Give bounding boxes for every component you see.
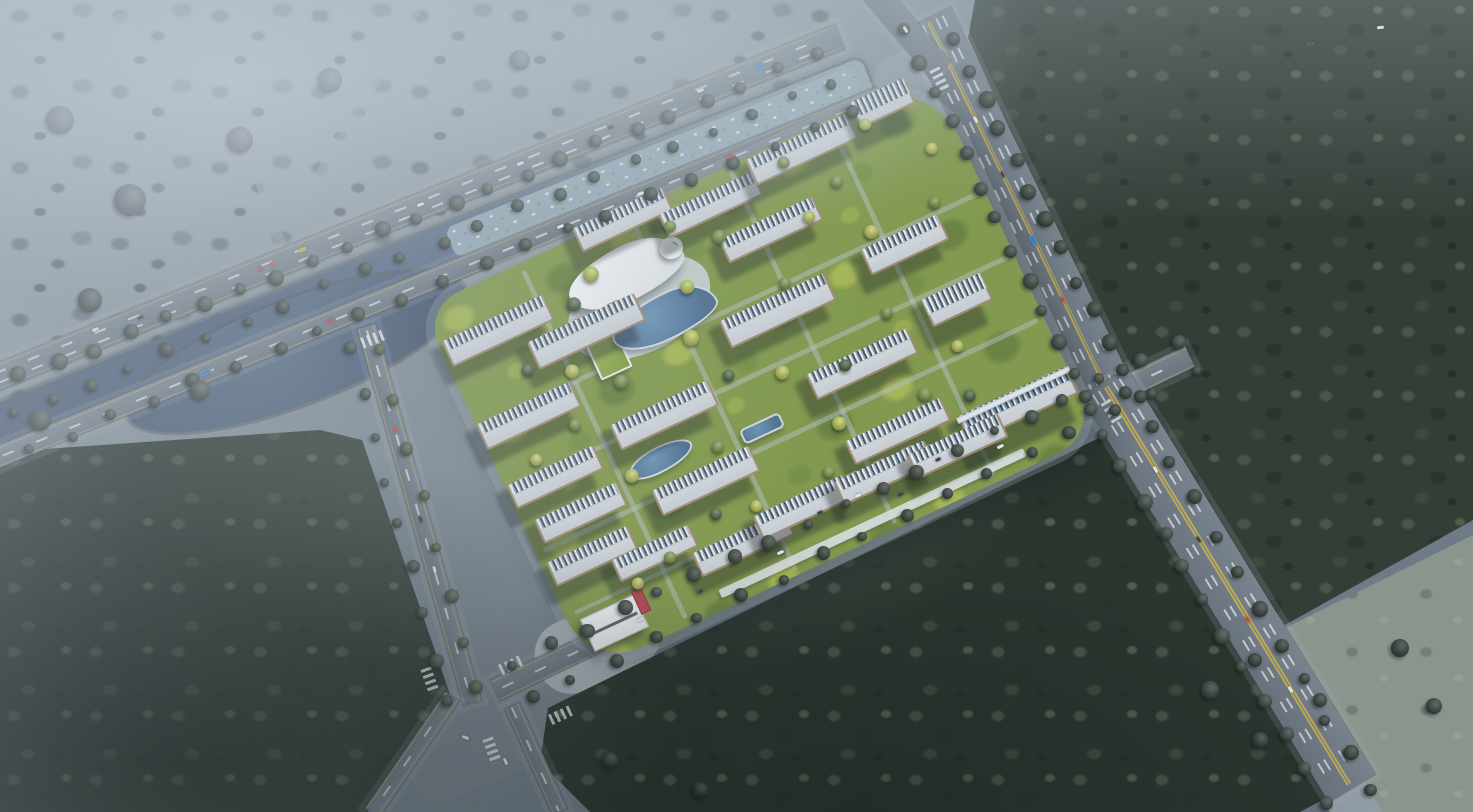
street-tree: [909, 465, 924, 480]
street-tree: [565, 675, 575, 685]
street-tree: [545, 636, 558, 649]
street-tree: [846, 105, 859, 118]
street-tree: [230, 361, 242, 373]
landscape-tree: [710, 439, 726, 455]
street-tree: [691, 613, 701, 623]
street-tree: [1248, 653, 1262, 667]
street-tree: [1116, 364, 1129, 377]
street-tree: [202, 333, 211, 342]
street-tree: [268, 270, 284, 286]
street-tree: [374, 344, 385, 355]
street-tree: [86, 344, 101, 359]
street-tree: [1320, 796, 1333, 809]
street-tree: [9, 408, 18, 417]
street-tree: [351, 307, 365, 321]
street-tree: [1298, 762, 1311, 775]
street-tree: [1252, 732, 1268, 748]
street-tree: [811, 47, 824, 60]
street-tree: [692, 782, 708, 798]
street-tree: [857, 532, 867, 542]
street-tree: [1054, 240, 1068, 254]
street-tree: [392, 518, 402, 528]
street-tree: [1134, 353, 1148, 367]
street-tree: [319, 279, 329, 289]
landscape-tree: [528, 452, 544, 468]
street-tree: [1011, 153, 1025, 167]
street-tree: [276, 300, 290, 314]
aerial-masterplan-rendering: [0, 0, 1473, 812]
street-tree: [123, 365, 132, 374]
street-tree: [1163, 456, 1174, 467]
street-tree: [929, 87, 941, 99]
street-tree: [1097, 429, 1108, 440]
street-tree: [1201, 681, 1219, 699]
street-tree: [817, 546, 830, 559]
street-tree: [307, 255, 319, 267]
street-tree: [344, 341, 357, 354]
street-tree: [29, 409, 51, 431]
street-tree: [159, 342, 174, 357]
street-tree: [114, 184, 146, 216]
street-tree: [1280, 727, 1294, 741]
street-tree: [728, 549, 742, 563]
landscape-tree: [962, 388, 978, 404]
street-tree: [602, 752, 618, 768]
street-tree: [618, 600, 632, 614]
street-tree: [1134, 390, 1147, 403]
street-tree: [1391, 639, 1409, 657]
street-tree: [901, 509, 914, 522]
street-tree: [1023, 273, 1039, 289]
street-tree: [1197, 593, 1209, 605]
street-tree: [1146, 388, 1157, 399]
street-tree: [1364, 784, 1376, 796]
street-tree: [78, 288, 102, 312]
street-tree: [51, 353, 68, 370]
street-tree: [471, 220, 483, 232]
street-tree: [510, 50, 530, 70]
street-tree: [687, 567, 702, 582]
street-tree: [527, 690, 540, 703]
street-tree: [46, 106, 74, 134]
street-tree: [1020, 184, 1036, 200]
street-tree: [947, 32, 960, 45]
street-tree: [227, 127, 253, 153]
street-tree: [1343, 745, 1358, 760]
street-tree: [650, 631, 662, 643]
street-tree: [190, 380, 210, 400]
street-tree: [580, 624, 594, 638]
street-tree: [482, 183, 494, 195]
street-tree: [826, 79, 837, 90]
street-tree: [430, 654, 443, 667]
street-tree: [1426, 698, 1442, 714]
street-tree: [1137, 494, 1153, 510]
street-tree: [417, 607, 428, 618]
street-tree: [318, 68, 342, 92]
street-tree: [772, 62, 783, 73]
street-tree: [974, 182, 988, 196]
landscape-tree: [924, 141, 940, 157]
street-tree: [1094, 373, 1105, 384]
street-tree: [804, 519, 813, 528]
street-tree: [734, 82, 745, 93]
street-tree: [1113, 458, 1127, 472]
street-tree: [771, 142, 780, 151]
street-tree: [1084, 403, 1097, 416]
street-tree: [599, 210, 611, 222]
street-tree: [554, 188, 567, 201]
street-tree: [360, 388, 371, 399]
street-tree: [631, 122, 645, 136]
street-tree: [410, 213, 422, 225]
residential-tower: [921, 272, 1001, 342]
street-tree: [610, 654, 624, 668]
street-tree: [1252, 601, 1267, 616]
street-tree: [981, 468, 992, 479]
street-tree: [563, 223, 573, 233]
street-tree: [419, 490, 430, 501]
street-tree: [942, 488, 953, 499]
street-tree: [1025, 410, 1039, 424]
street-tree: [1313, 693, 1327, 707]
street-tree: [1160, 527, 1173, 540]
street-tree: [661, 110, 676, 125]
street-tree: [449, 195, 464, 210]
landscape-tree: [829, 174, 845, 190]
street-tree: [1062, 426, 1076, 440]
street-tree: [588, 171, 600, 183]
street-tree: [589, 135, 601, 147]
street-tree: [631, 154, 641, 164]
street-tree: [68, 432, 77, 441]
street-tree: [1109, 404, 1121, 416]
street-tree: [651, 587, 662, 598]
street-tree: [979, 91, 995, 107]
street-tree: [48, 394, 59, 405]
street-tree: [149, 396, 161, 408]
street-tree: [395, 294, 408, 307]
street-tree: [441, 695, 453, 707]
street-tree: [400, 442, 413, 455]
street-tree: [124, 324, 139, 339]
street-tree: [359, 262, 371, 274]
street-tree: [779, 575, 789, 585]
street-tree: [685, 173, 698, 186]
street-tree: [394, 252, 405, 263]
street-tree: [1087, 301, 1103, 317]
street-tree: [1004, 245, 1017, 258]
street-tree: [761, 535, 776, 550]
landscape-tree: [612, 372, 631, 391]
street-tree: [160, 310, 172, 322]
street-tree: [1079, 390, 1091, 402]
street-tree: [990, 426, 999, 435]
street-tree: [1275, 639, 1289, 653]
street-tree: [1102, 334, 1118, 350]
street-tree: [963, 65, 976, 78]
street-tree: [431, 543, 441, 553]
street-tree: [1070, 277, 1082, 289]
